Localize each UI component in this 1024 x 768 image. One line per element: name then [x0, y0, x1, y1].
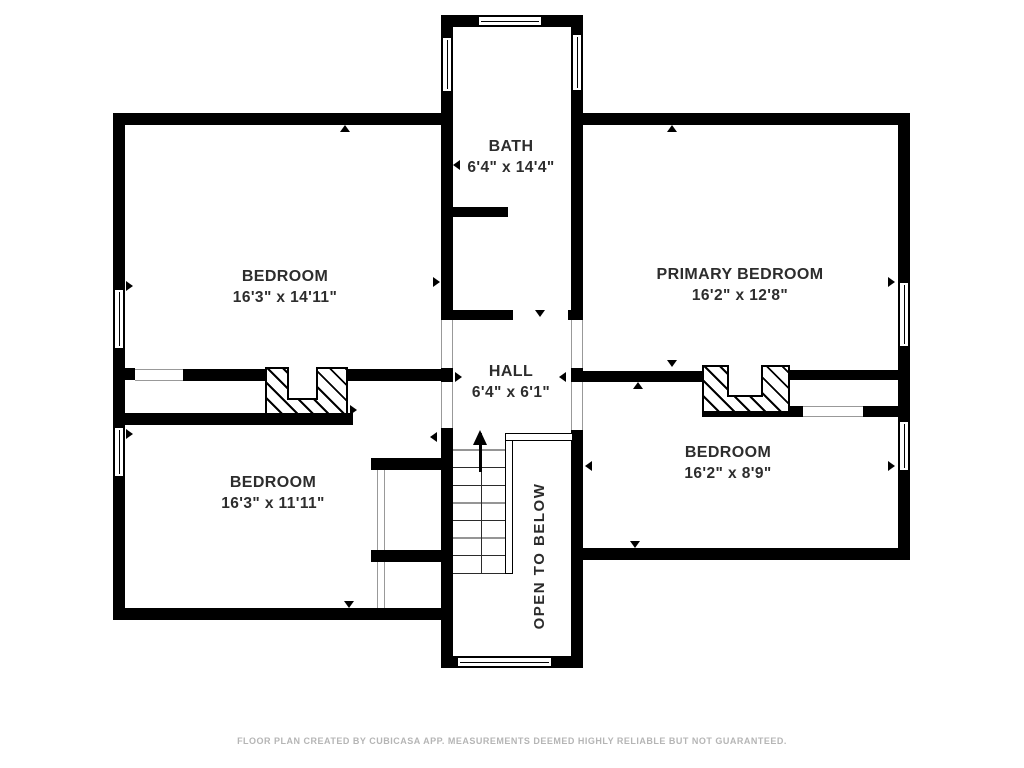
disclaimer-text: FLOOR PLAN CREATED BY CUBICASA APP. MEAS… [0, 736, 1024, 746]
door-marker [888, 461, 895, 471]
door-marker [344, 601, 354, 608]
door-marker [667, 360, 677, 367]
room-label-open-to-below: OPEN TO BELOW [531, 476, 549, 636]
door-marker [126, 281, 133, 291]
wall [568, 310, 583, 320]
wall [371, 458, 381, 470]
wall [113, 113, 442, 125]
room-label-bedroom-se: BEDROOM 16'2" x 8'9" [578, 443, 878, 484]
window [477, 15, 543, 27]
wall [571, 548, 910, 560]
wall [453, 207, 508, 217]
wall [113, 113, 125, 620]
chimney-flue [727, 365, 763, 397]
wall [183, 369, 265, 381]
room-dims: 16'3" x 11'11" [123, 493, 423, 514]
room-dims: 16'2" x 12'8" [590, 285, 890, 306]
window [571, 33, 583, 92]
door-opening [441, 320, 453, 368]
door-marker [350, 371, 357, 381]
door-marker [535, 310, 545, 317]
floor-plan: BATH 6'4" x 14'4" BEDROOM 16'3" x 14'11"… [0, 0, 1024, 768]
window [441, 36, 453, 93]
window [898, 420, 910, 472]
closet-door [377, 562, 385, 608]
stairs-up-arrow [479, 444, 482, 472]
room-name: BEDROOM [123, 473, 423, 493]
wall [441, 310, 513, 320]
chimney-flue [287, 367, 318, 400]
room-name: BATH [361, 137, 661, 157]
wall [378, 458, 453, 470]
room-label-bath: BATH 6'4" x 14'4" [361, 137, 661, 178]
door-opening [571, 320, 583, 368]
wall [571, 113, 910, 125]
room-dims: 16'3" x 14'11" [135, 287, 435, 308]
room-dims: 16'2" x 8'9" [578, 463, 878, 484]
room-label-primary-bedroom: PRIMARY BEDROOM 16'2" x 12'8" [590, 265, 890, 306]
door-marker [430, 432, 437, 442]
wall [863, 406, 898, 417]
window [456, 656, 553, 668]
wall [371, 550, 381, 562]
room-dims: 6'4" x 6'1" [361, 382, 661, 403]
door-marker [667, 125, 677, 132]
room-name: PRIMARY BEDROOM [590, 265, 890, 285]
wall [113, 368, 135, 380]
wall [113, 608, 453, 620]
door-marker [350, 405, 357, 415]
door-marker [340, 125, 350, 132]
window [113, 426, 125, 478]
door-marker [576, 277, 583, 287]
sliding-door [135, 369, 183, 381]
wall [788, 370, 898, 380]
room-name: BEDROOM [135, 267, 435, 287]
stairs-up-arrow-head [473, 430, 487, 445]
railing [505, 433, 513, 574]
room-name: HALL [361, 362, 661, 382]
wall [378, 550, 453, 562]
window [113, 288, 125, 350]
sliding-door [803, 406, 863, 417]
room-label-bedroom-sw: BEDROOM 16'3" x 11'11" [123, 473, 423, 514]
room-dims: 6'4" x 14'4" [361, 157, 661, 178]
door-marker [126, 429, 133, 439]
railing [505, 433, 573, 441]
door-marker [630, 541, 640, 548]
room-label-hall: HALL 6'4" x 6'1" [361, 362, 661, 403]
window [898, 281, 910, 348]
room-name: BEDROOM [578, 443, 878, 463]
room-label-bedroom-nw: BEDROOM 16'3" x 14'11" [135, 267, 435, 308]
